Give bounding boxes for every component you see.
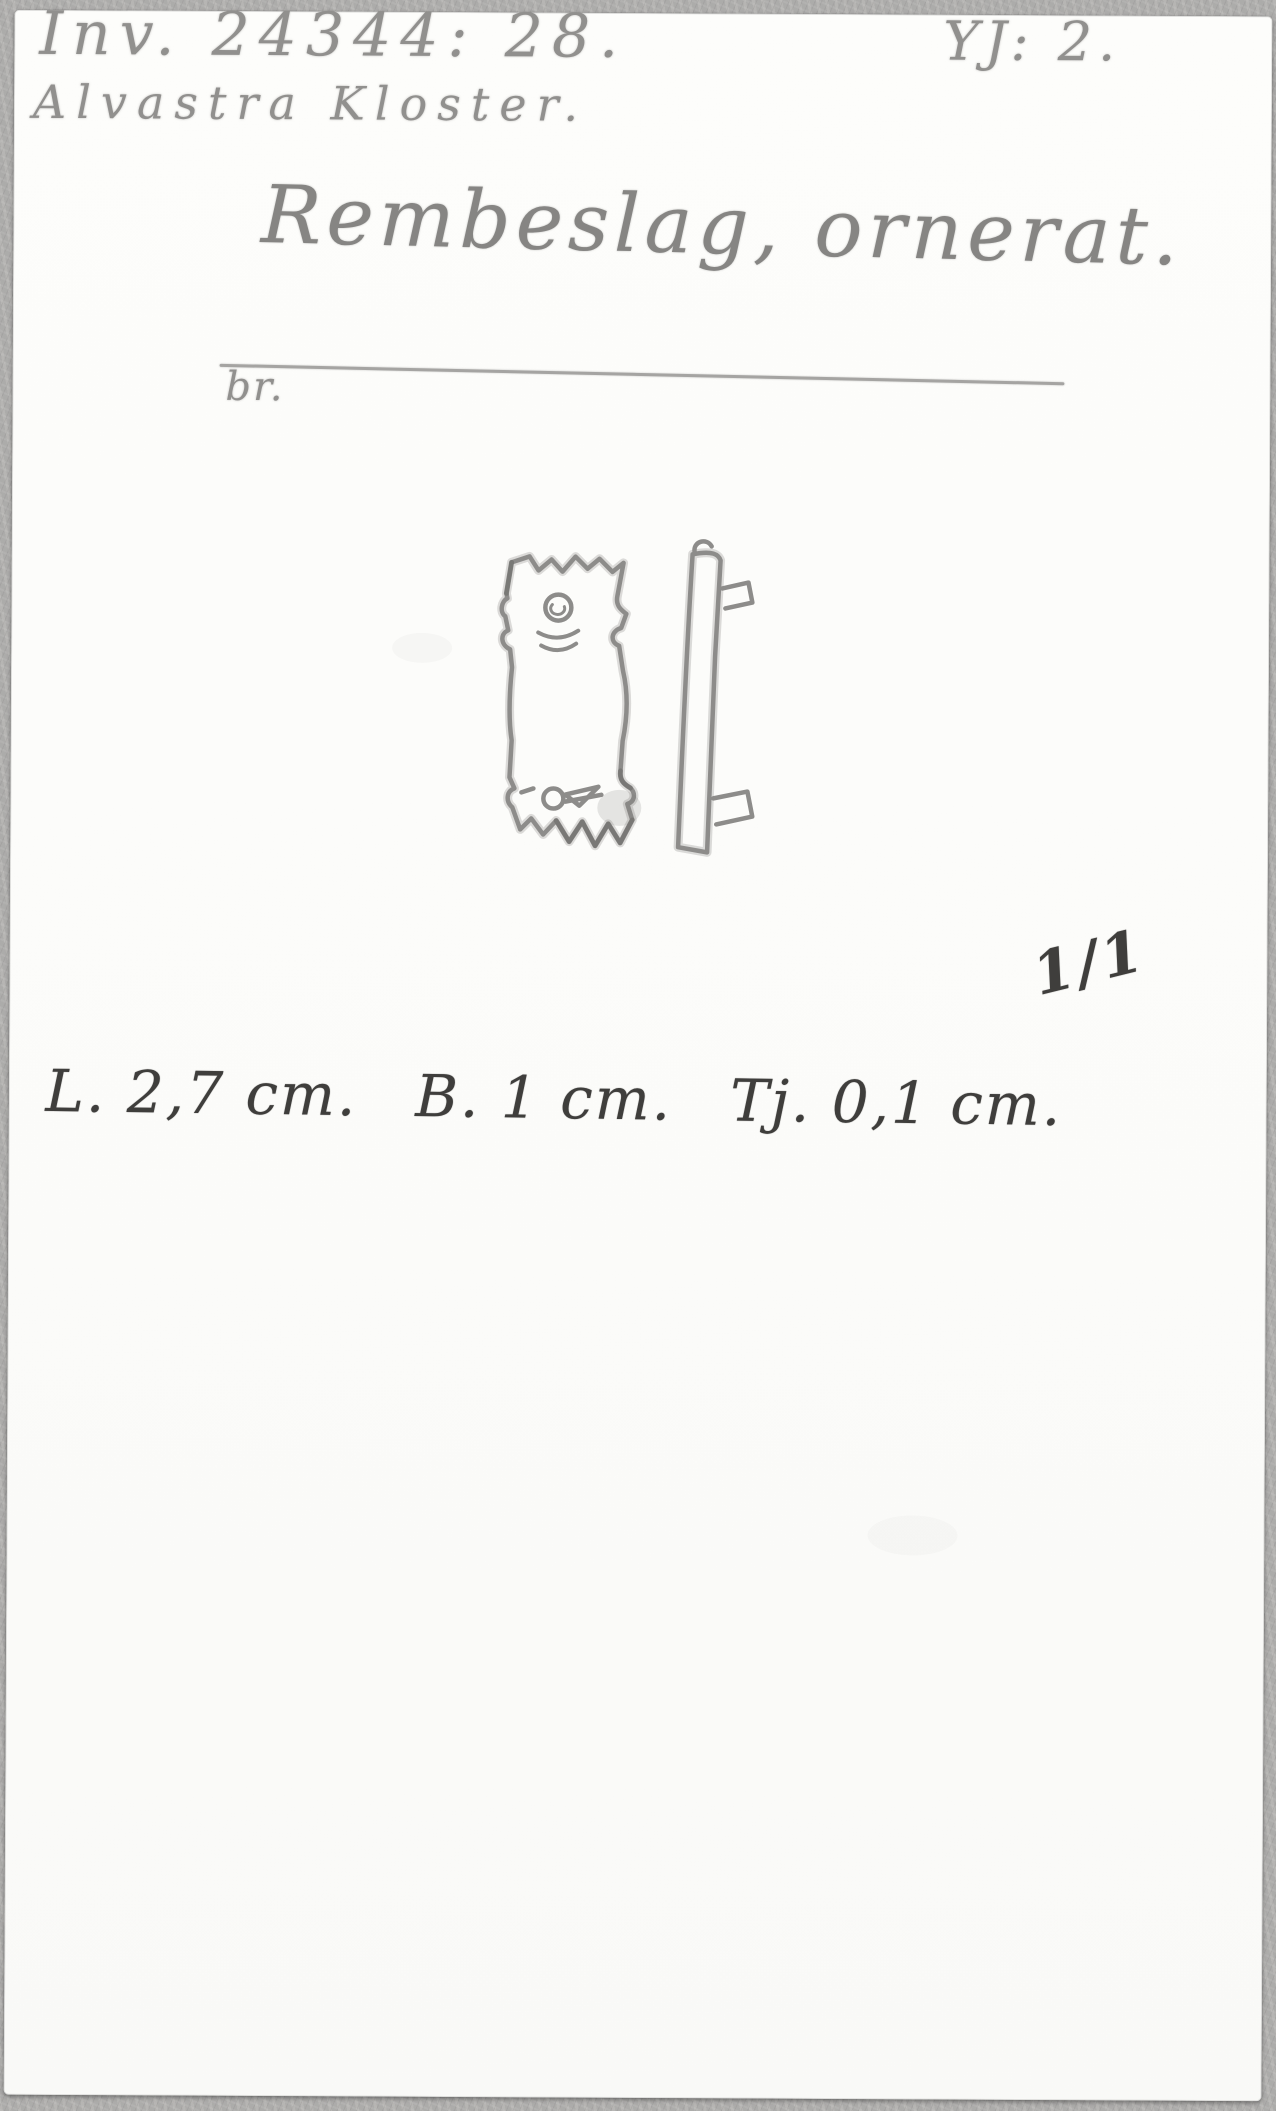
- plate-reference: YJ: 2.: [943, 10, 1121, 74]
- object-title: Rembeslag, ornerat.: [260, 168, 1184, 284]
- scale-notation: 1/1: [1026, 916, 1153, 1009]
- measurement-thickness: Tj. 0,1 cm.: [730, 1066, 1063, 1139]
- inventory-card: Inv. 24344: 28. YJ: 2. Alvastra Kloster.…: [4, 10, 1273, 2102]
- paper-smudge: [867, 1515, 957, 1555]
- object-sketch: [481, 535, 783, 882]
- measurement-length: L. 2,7 cm.: [45, 1057, 358, 1129]
- site-name: Alvastra Kloster.: [33, 75, 588, 132]
- measurements-line: L. 2,7 cm. B. 1 cm. Tj. 0,1 cm.: [45, 1057, 1063, 1139]
- measurement-width: B. 1 cm.: [415, 1062, 673, 1134]
- material-abbreviation: br.: [225, 364, 284, 410]
- inventory-number: Inv. 24344: 28.: [39, 0, 627, 72]
- title-underline: [220, 364, 1065, 385]
- scanned-inventory-card-page: { "document": { "inventory_no": "Inv. 24…: [0, 0, 1276, 2111]
- paper-smudge: [392, 633, 452, 663]
